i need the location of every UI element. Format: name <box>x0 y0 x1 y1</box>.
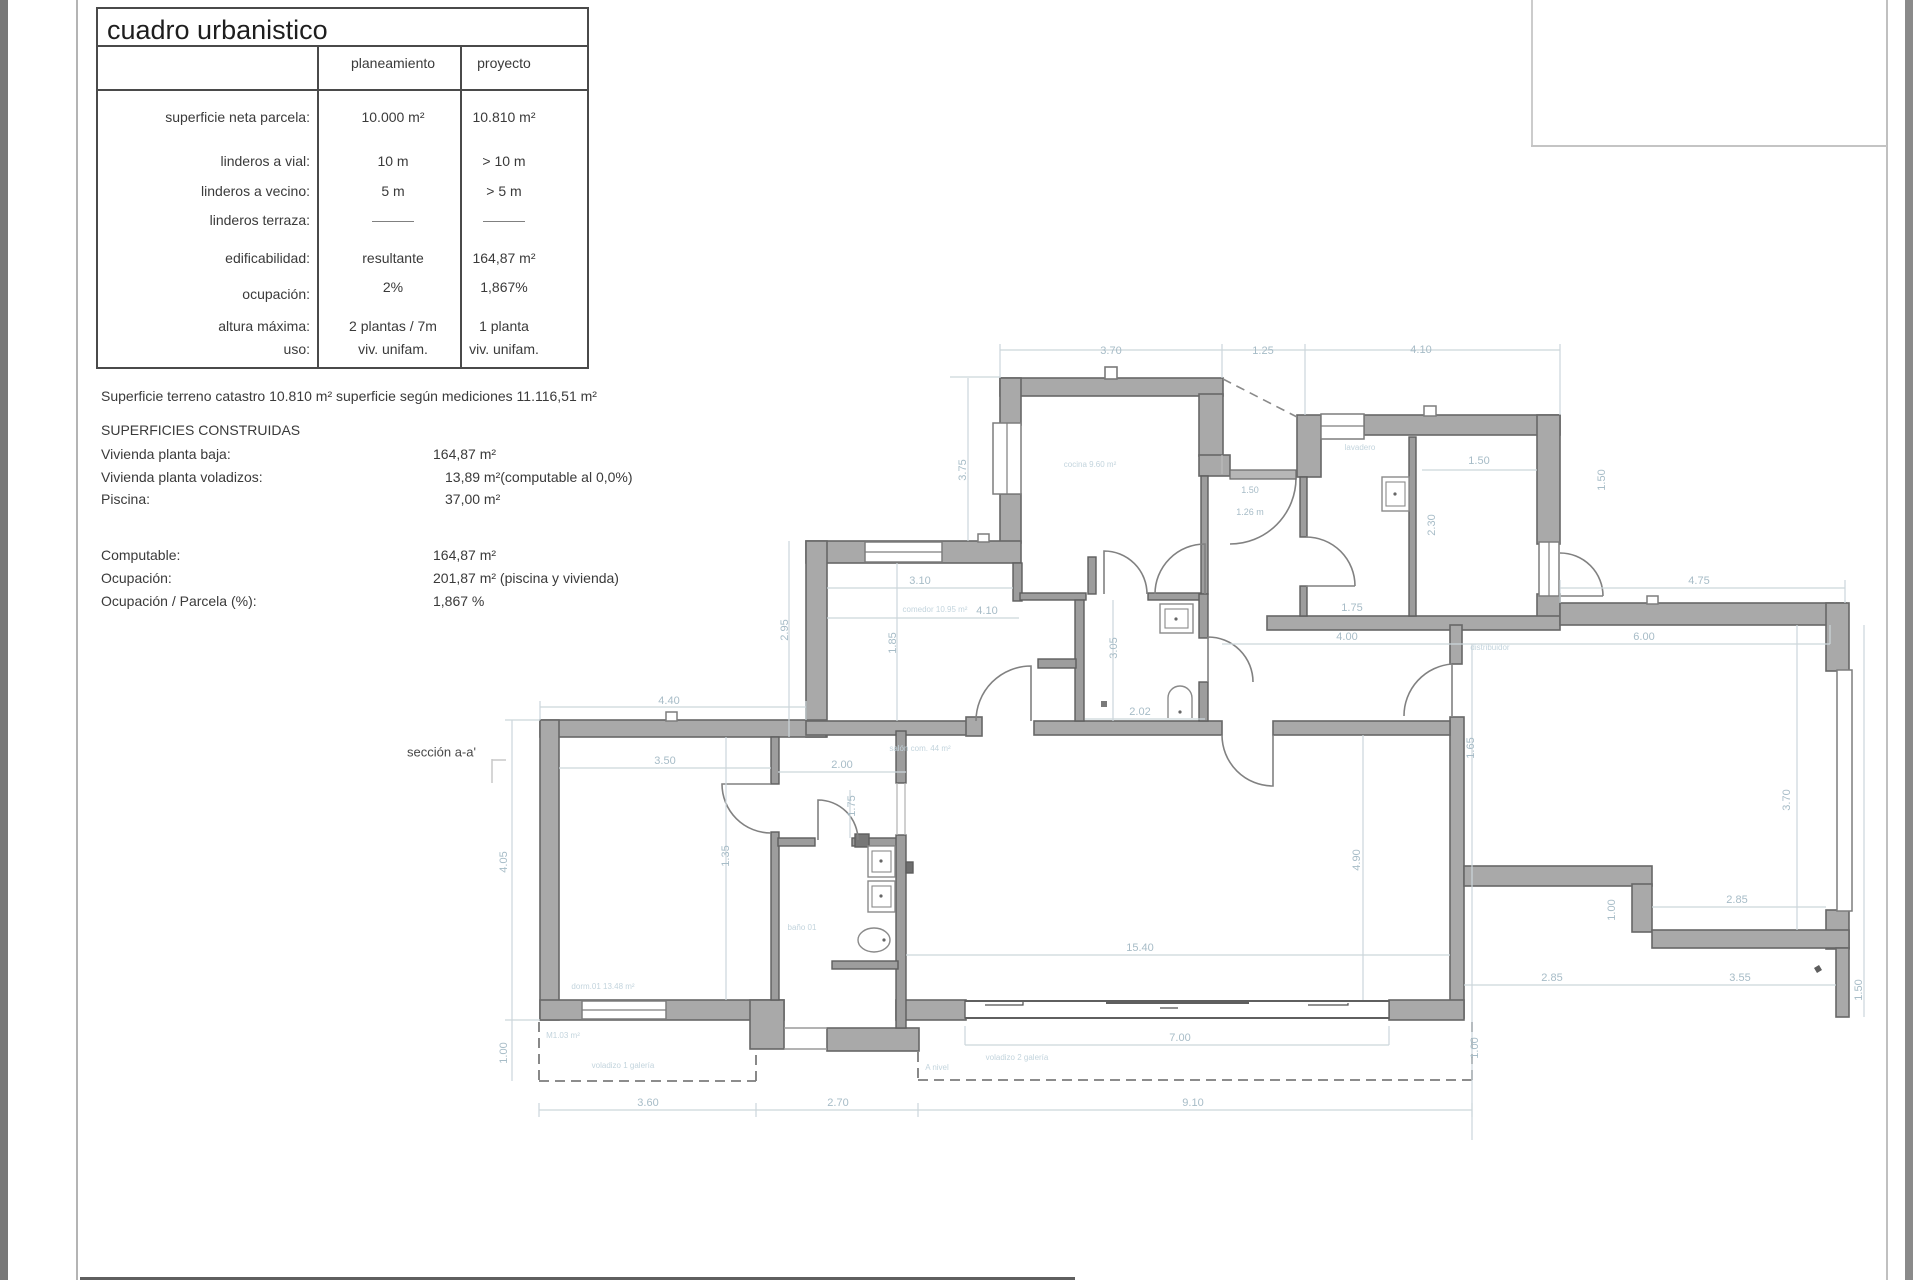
svg-text:6.00: 6.00 <box>1633 631 1654 643</box>
svg-text:1.75: 1.75 <box>846 795 858 816</box>
svg-text:distribuidor: distribuidor <box>1470 643 1509 652</box>
svg-text:voladizo 2 galería: voladizo 2 galería <box>986 1053 1049 1062</box>
svg-text:4.10: 4.10 <box>976 605 997 617</box>
svg-text:9.10: 9.10 <box>1182 1097 1203 1109</box>
svg-text:dorm.01 13.48 m²: dorm.01 13.48 m² <box>571 982 634 991</box>
svg-text:1.85: 1.85 <box>887 632 899 653</box>
svg-text:2.85: 2.85 <box>1726 894 1747 906</box>
svg-text:2.85: 2.85 <box>1541 972 1562 984</box>
svg-text:3.05: 3.05 <box>1108 637 1120 658</box>
svg-text:M1.03 m²: M1.03 m² <box>546 1031 580 1040</box>
svg-text:3.60: 3.60 <box>637 1097 658 1109</box>
svg-text:salón com. 44 m²: salón com. 44 m² <box>889 744 951 753</box>
svg-text:4.90: 4.90 <box>1351 849 1363 870</box>
svg-text:1.25: 1.25 <box>1252 345 1273 357</box>
svg-text:4.10: 4.10 <box>1410 344 1431 356</box>
svg-text:3.55: 3.55 <box>1729 972 1750 984</box>
svg-text:1.26 m: 1.26 m <box>1236 507 1264 517</box>
svg-text:1.00: 1.00 <box>498 1042 510 1063</box>
svg-text:1.50: 1.50 <box>1853 979 1865 1000</box>
svg-text:comedor 10.95 m²: comedor 10.95 m² <box>903 605 968 614</box>
svg-text:3.70: 3.70 <box>1100 345 1121 357</box>
svg-text:4.40: 4.40 <box>658 695 679 707</box>
svg-text:1.50: 1.50 <box>1596 469 1608 490</box>
svg-text:2.02: 2.02 <box>1129 706 1150 718</box>
svg-text:4.75: 4.75 <box>1688 575 1709 587</box>
svg-text:1.50: 1.50 <box>1468 455 1489 467</box>
svg-text:3.10: 3.10 <box>909 575 930 587</box>
svg-text:2.70: 2.70 <box>827 1097 848 1109</box>
svg-text:2.30: 2.30 <box>1426 514 1438 535</box>
svg-text:2.95: 2.95 <box>779 619 791 640</box>
svg-text:4.00: 4.00 <box>1336 631 1357 643</box>
svg-text:cocina 9.60 m²: cocina 9.60 m² <box>1064 460 1117 469</box>
svg-text:4.05: 4.05 <box>498 851 510 872</box>
svg-text:1.00: 1.00 <box>1469 1037 1481 1058</box>
svg-text:1.65: 1.65 <box>1465 737 1477 758</box>
svg-text:3.70: 3.70 <box>1781 789 1793 810</box>
svg-text:1.50: 1.50 <box>1241 485 1259 495</box>
svg-text:baño 01: baño 01 <box>788 923 817 932</box>
svg-text:3.75: 3.75 <box>957 459 969 480</box>
svg-text:1.00: 1.00 <box>1606 899 1618 920</box>
svg-text:voladizo 1 galería: voladizo 1 galería <box>592 1061 655 1070</box>
svg-text:15.40: 15.40 <box>1126 942 1154 954</box>
svg-text:3.50: 3.50 <box>654 755 675 767</box>
svg-text:lavadero: lavadero <box>1345 443 1376 452</box>
svg-text:1.75: 1.75 <box>1341 602 1362 614</box>
svg-text:1.35: 1.35 <box>720 845 732 866</box>
svg-text:A nivel: A nivel <box>925 1063 949 1072</box>
svg-text:2.00: 2.00 <box>831 759 852 771</box>
svg-text:7.00: 7.00 <box>1169 1032 1190 1044</box>
